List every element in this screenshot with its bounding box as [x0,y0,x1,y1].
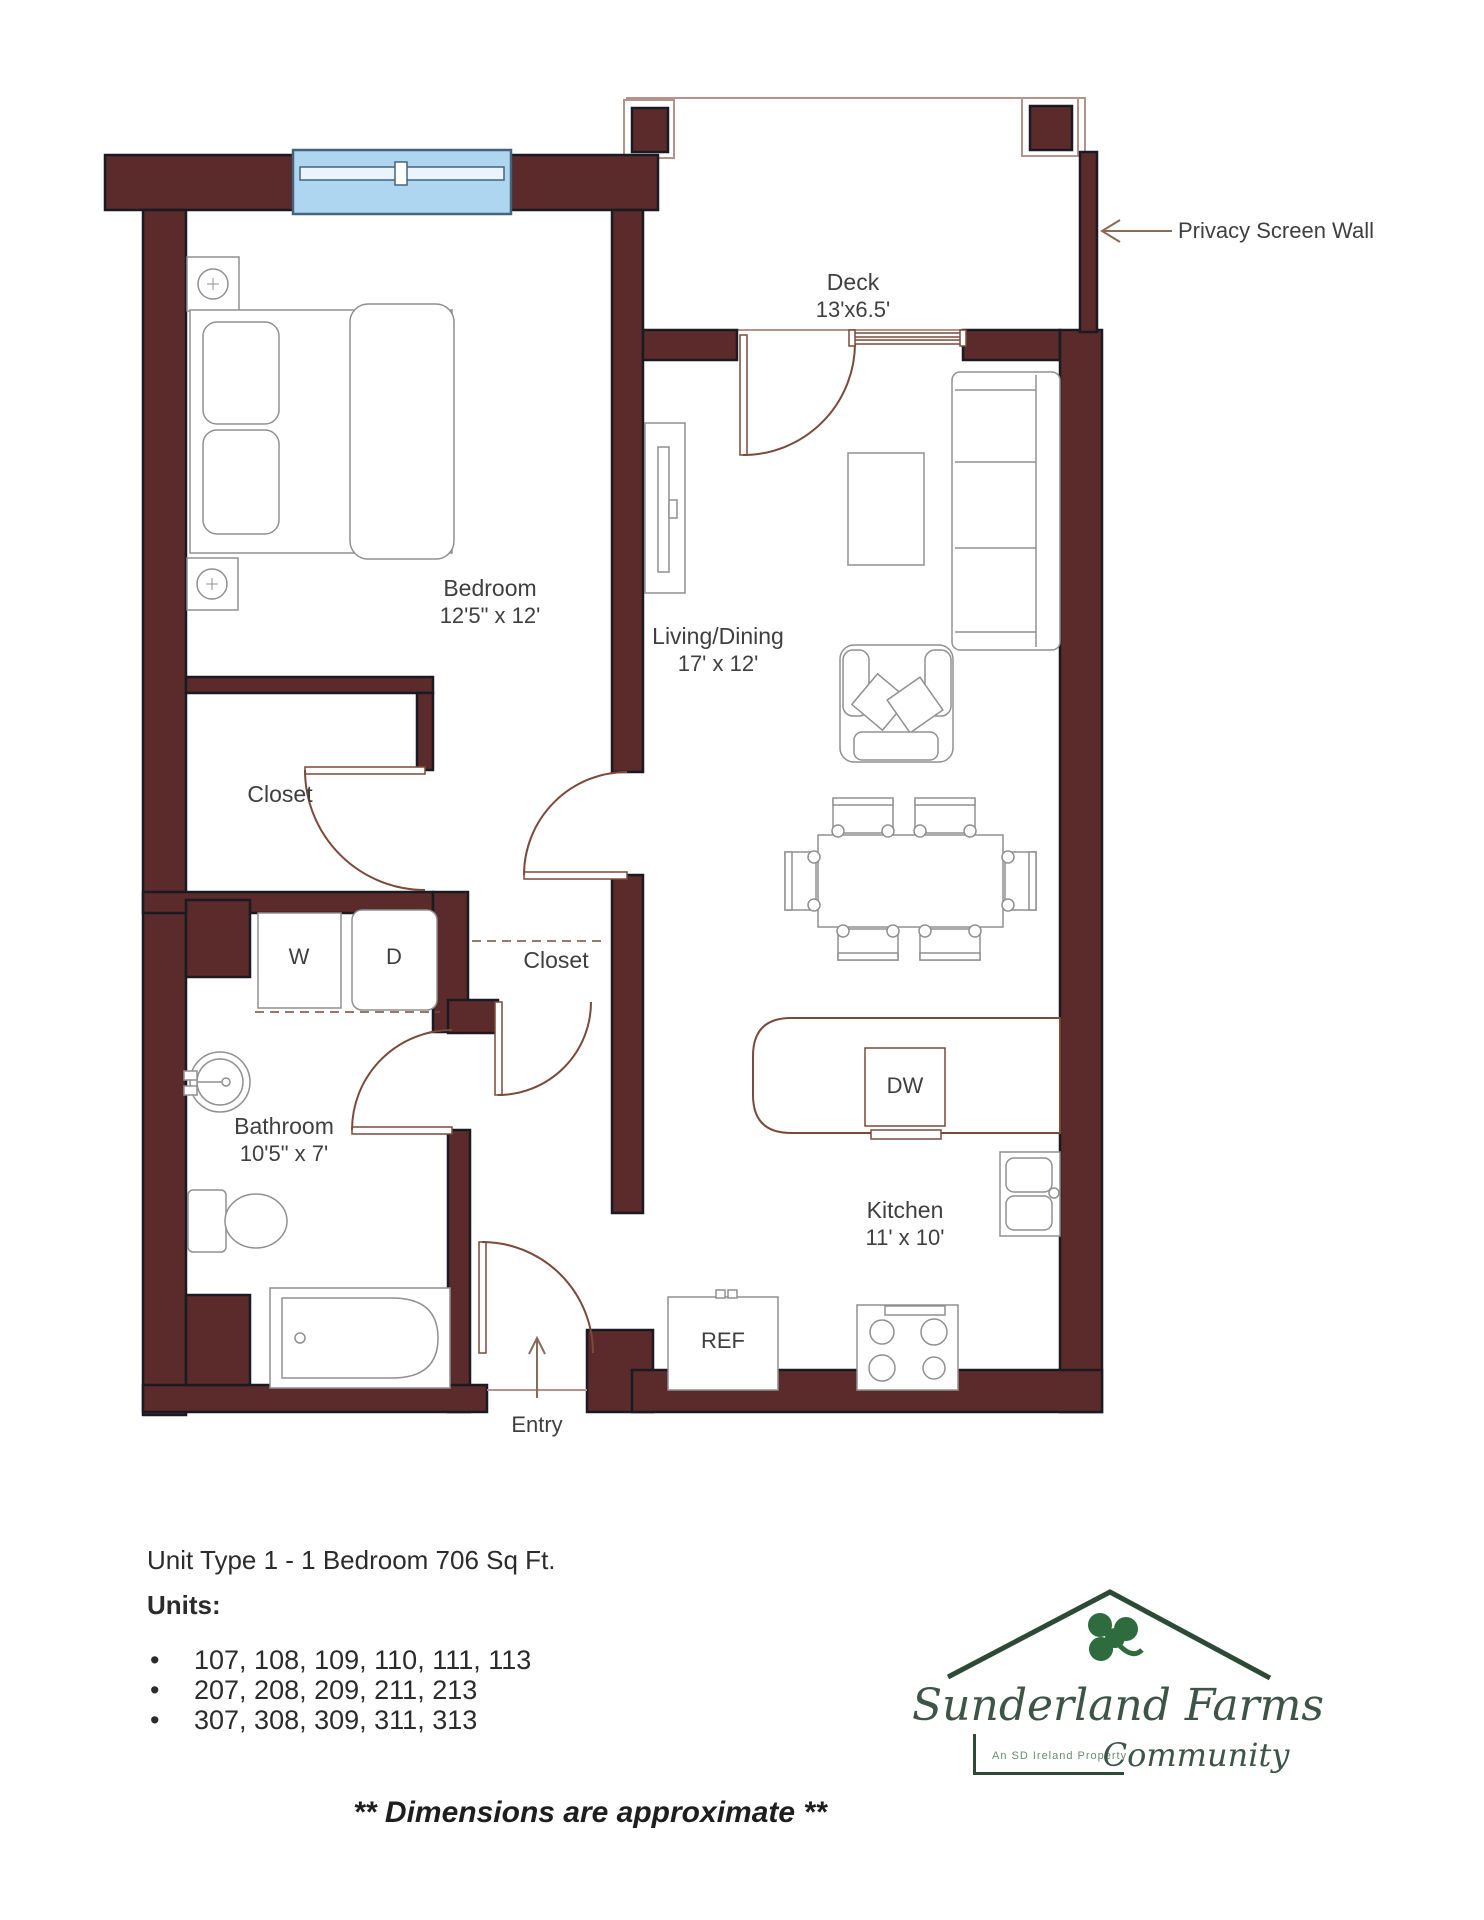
kitchen-dims: 11' x 10' [866,1224,945,1252]
dining-chair [1002,851,1036,911]
units-list-3: 307, 308, 309, 311, 313 [194,1705,477,1735]
bedroom-window [293,150,511,214]
bathtub [270,1288,450,1388]
logo-graphics [948,1592,1270,1678]
bedroom-dims: 12'5" x 12' [440,602,541,630]
north-wall-left [105,155,293,210]
tv-console [645,423,685,593]
dining-chair [832,798,894,837]
refrigerator-label: REF [701,1328,745,1354]
east-wall [1060,330,1102,1412]
bedroom-closet-name: Closet [247,780,312,808]
dining-chair [785,851,820,911]
logo-community: Community [1103,1736,1290,1774]
nightstand-top [187,257,239,311]
window-mullion [395,162,407,185]
west-wall [143,210,186,1415]
coffee-table [848,453,924,565]
dining-set [785,798,1036,960]
bathroom-door [352,1030,452,1134]
nightstand-bottom [187,558,238,610]
bedroom-south-wall [186,677,433,693]
living-north-wall-left [643,330,737,360]
hall-closet-name: Closet [523,946,588,974]
entry-label: Entry [511,1412,562,1438]
hall-closet-label: Closet [523,946,588,974]
logo-name: Sunderland Farms [912,1680,1324,1731]
privacy-wall-arrow-icon [1102,220,1172,242]
pillow [203,430,279,534]
bedroom-closet-east-wall [417,693,433,770]
floorplan-page: Deck 13'x6.5' Bedroom 12'5" x 12' Living… [0,0,1484,1920]
laundry [255,910,440,1012]
bathroom-sink [184,1052,250,1112]
floorplan-drawing [0,0,1484,1920]
unit-type-title: Unit Type 1 - 1 Bedroom 706 Sq Ft. [147,1545,556,1576]
deck-post-left [632,108,668,152]
deck-label: Deck 13'x6.5' [816,268,890,324]
dimensions-disclaimer: ** Dimensions are approximate ** [330,1796,850,1830]
dishwasher-threshold [871,1130,941,1139]
bullet-icon: • [150,1705,194,1736]
deck-post-right [1030,106,1072,150]
living-name: Living/Dining [652,622,784,650]
privacy-screen-wall-label: Privacy Screen Wall [1178,218,1374,244]
dryer-label: D [386,944,402,970]
dining-chair [837,925,899,960]
toilet [188,1190,287,1252]
units-heading: Units: [147,1590,221,1621]
sofa [952,372,1060,650]
north-wall-right [511,155,658,210]
tv-icon [658,447,669,572]
blanket [350,304,454,559]
bedroom-closet-label: Closet [247,780,312,808]
living-dims: 17' x 12' [652,650,784,678]
washer-label: W [289,944,310,970]
bedroom-name: Bedroom [440,574,541,602]
bed [190,304,454,559]
bathroom-south-wall [143,1385,487,1412]
deck-dims: 13'x6.5' [816,296,890,324]
hall-closet-south-wall [448,1000,498,1033]
kitchen-sink [1000,1152,1060,1236]
bathroom-label: Bathroom 10'5" x 7' [234,1112,334,1168]
privacy-screen-wall [1080,152,1097,332]
dining-chair [914,798,976,837]
bathroom-dims: 10'5" x 7' [234,1140,334,1168]
bedroom-label: Bedroom 12'5" x 12' [440,574,541,630]
deck-slider [849,330,966,346]
units-list-1: 107, 108, 109, 110, 111, 113 [194,1645,531,1675]
hall-closet-door [495,1002,591,1095]
bedroom-furniture [187,257,454,610]
living-north-wall-right [963,330,1060,360]
units-row-2: •207, 208, 209, 211, 213 [150,1675,477,1706]
units-row-1: •107, 108, 109, 110, 111, 113 [150,1645,531,1676]
dining-table [818,835,1003,927]
dishwasher-label: DW [887,1073,924,1099]
units-row-3: •307, 308, 309, 311, 313 [150,1705,477,1736]
bullet-icon: • [150,1645,194,1676]
deck-door [740,335,855,455]
stove [857,1305,958,1390]
pillow [203,322,279,424]
bedroom-closet-door [305,767,425,890]
entry-door [479,1242,593,1353]
bedroom-east-wall [612,210,643,772]
kitchen-name: Kitchen [866,1196,945,1224]
bedroom-door [524,772,627,879]
bathroom-name: Bathroom [234,1112,334,1140]
living-dining-label: Living/Dining 17' x 12' [652,622,784,678]
bathroom-corner-block-top [186,900,250,977]
bullet-icon: • [150,1675,194,1706]
bathroom-east-wall [448,1130,470,1412]
bathroom-corner-block-bottom [186,1295,250,1385]
dining-chair [919,925,981,960]
armchair [840,645,953,762]
units-list-2: 207, 208, 209, 211, 213 [194,1675,477,1705]
shamrock-icon [1088,1613,1142,1661]
kitchen-label: Kitchen 11' x 10' [866,1196,945,1252]
hall-kitchen-wall [612,875,643,1213]
deck-name: Deck [816,268,890,296]
